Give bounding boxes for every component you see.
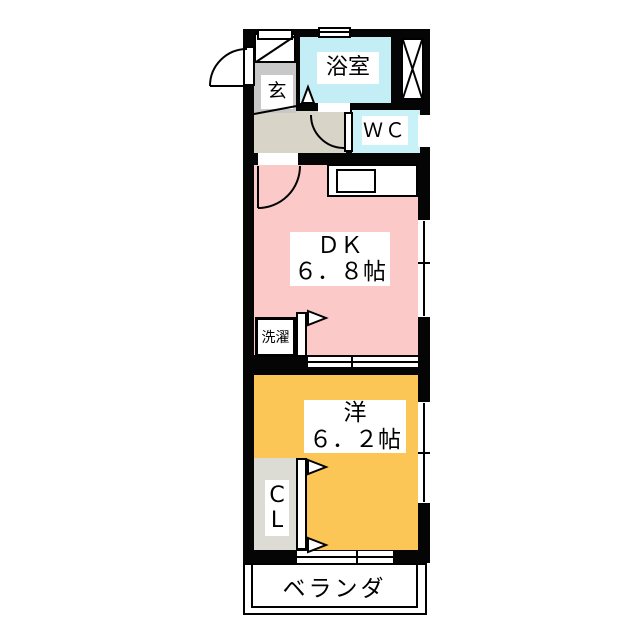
toilet-window — [418, 115, 430, 147]
closet-sliding-door — [296, 458, 307, 550]
bathroom-label-box: 浴室 — [317, 52, 379, 84]
closet-label-box: C L — [265, 480, 289, 536]
front-door-arc — [210, 49, 247, 86]
dk-door-opening — [258, 153, 298, 165]
pipe-shaft-hatch — [401, 38, 424, 100]
bathroom-wall-vent-line — [318, 31, 351, 33]
western-room-size: ６．２帖 — [309, 427, 401, 453]
dk-label-box: ＤＫ ６．８帖 — [290, 232, 390, 286]
western-room-right-window — [418, 402, 430, 503]
hallway-area — [254, 111, 346, 153]
front-door-leaf — [243, 46, 255, 86]
entrance-label: 玄 — [267, 81, 286, 103]
dk-size: ６．８帖 — [294, 259, 386, 285]
dk-label: ＤＫ — [317, 233, 363, 259]
kitchen-sink — [336, 169, 376, 193]
veranda-inner-outline: ベランダ — [251, 563, 418, 608]
entrance-label-box: 玄 — [261, 75, 293, 109]
western-room-label-box: 洋 ６．２帖 — [304, 400, 406, 453]
closet-label-line2: L — [271, 508, 283, 533]
dk-western-sliding-door — [308, 357, 418, 367]
toilet-label: ＷＣ — [363, 119, 407, 142]
dk-right-window — [418, 220, 430, 317]
western-room-label: 洋 — [344, 400, 367, 426]
bathroom-label: 浴室 — [326, 55, 370, 80]
closet-label-line1: C — [269, 483, 284, 508]
top-wall-vent — [257, 29, 293, 40]
toilet-label-box: ＷＣ — [362, 116, 408, 145]
laundry-box: 洗濯 — [255, 317, 296, 357]
veranda-sliding-window — [297, 551, 393, 563]
veranda-label: ベランダ — [283, 567, 387, 603]
laundry-label: 洗濯 — [262, 327, 290, 347]
laundry-sliding-door — [296, 312, 307, 357]
toilet-door-leaf — [344, 112, 353, 152]
bathroom-door-opening — [318, 103, 350, 112]
